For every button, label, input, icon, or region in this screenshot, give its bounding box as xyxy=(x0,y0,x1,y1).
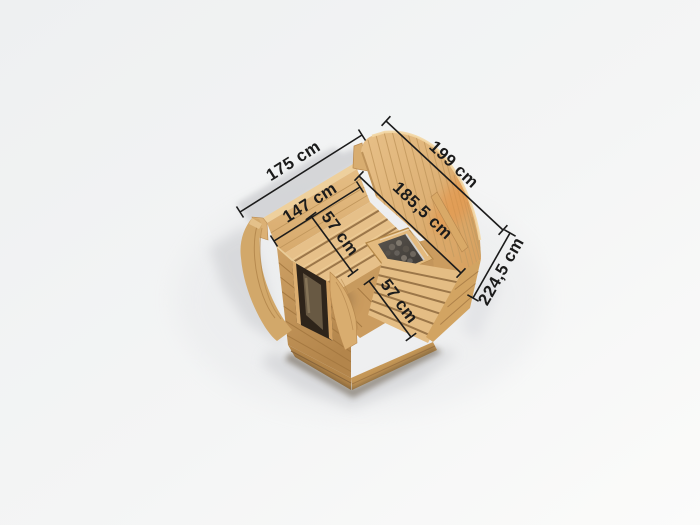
product-dimension-illustration: 175 cm 199 cm 224,5 cm 147 cm 185,5 cm xyxy=(0,0,700,525)
sauna-diagram-canvas: 175 cm 199 cm 224,5 cm 147 cm 185,5 cm xyxy=(0,0,700,525)
